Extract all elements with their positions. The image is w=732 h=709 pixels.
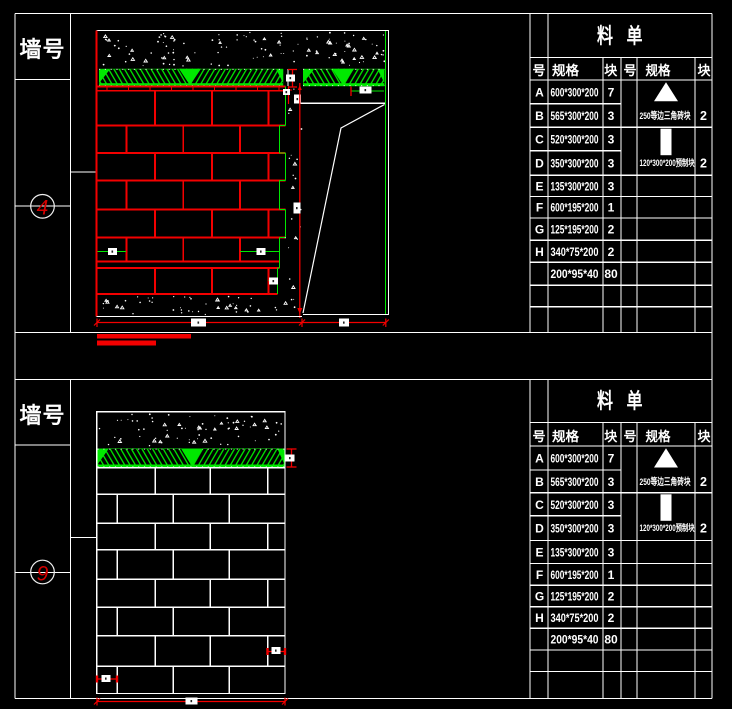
svg-text:2: 2 (608, 245, 615, 259)
svg-text:D: D (535, 157, 544, 171)
svg-text:340*75*200: 340*75*200 (551, 245, 599, 259)
svg-text:块: 块 (697, 63, 711, 78)
svg-text:3: 3 (608, 132, 615, 146)
svg-text:600*195*200: 600*195*200 (551, 201, 599, 215)
svg-text:E: E (535, 546, 543, 560)
svg-text:350*300*200: 350*300*200 (551, 522, 599, 536)
svg-text:2: 2 (608, 611, 615, 625)
svg-text:4: 4 (37, 197, 49, 220)
svg-text:2: 2 (700, 157, 707, 171)
svg-text:块: 块 (697, 429, 711, 444)
svg-text:块: 块 (604, 429, 618, 444)
svg-text:125*195*200: 125*195*200 (551, 223, 599, 237)
svg-text:规格: 规格 (646, 63, 672, 78)
svg-text:7: 7 (608, 85, 615, 99)
svg-text:1: 1 (608, 568, 615, 582)
svg-text:2: 2 (700, 522, 707, 536)
svg-text:B: B (535, 475, 544, 489)
svg-text:1: 1 (608, 201, 615, 215)
svg-text:80: 80 (604, 633, 618, 647)
svg-text:3: 3 (608, 179, 615, 193)
svg-text:135*300*200: 135*300*200 (551, 546, 599, 560)
svg-text:A: A (535, 85, 544, 99)
svg-text:F: F (536, 201, 543, 215)
svg-text:2: 2 (608, 589, 615, 603)
svg-text:350*300*200: 350*300*200 (551, 157, 599, 171)
svg-text:块: 块 (604, 63, 618, 78)
svg-text:200*95*40: 200*95*40 (551, 267, 599, 281)
svg-text:9: 9 (37, 563, 49, 586)
svg-text:340*75*200: 340*75*200 (551, 611, 599, 625)
svg-text:规格: 规格 (646, 429, 672, 444)
svg-text:单: 单 (627, 389, 643, 413)
svg-text:565*300*200: 565*300*200 (551, 475, 599, 489)
svg-text:125*195*200: 125*195*200 (551, 589, 599, 603)
svg-text:规格: 规格 (552, 429, 580, 444)
svg-text:250等边三角砖块: 250等边三角砖块 (640, 476, 691, 488)
svg-text:料: 料 (597, 390, 613, 413)
svg-text:料: 料 (597, 25, 613, 48)
svg-text:3: 3 (608, 475, 615, 489)
svg-text:520*300*200: 520*300*200 (551, 132, 599, 146)
svg-text:3: 3 (608, 498, 615, 512)
svg-text:600*195*200: 600*195*200 (551, 568, 599, 582)
svg-text:F: F (536, 568, 543, 582)
svg-text:单: 单 (627, 24, 643, 48)
svg-text:520*300*200: 520*300*200 (551, 498, 599, 512)
svg-text:G: G (535, 589, 544, 603)
svg-text:3: 3 (608, 546, 615, 560)
svg-text:B: B (535, 109, 544, 123)
svg-text:3: 3 (608, 522, 615, 536)
svg-text:3: 3 (608, 157, 615, 171)
svg-text:2: 2 (700, 475, 707, 489)
svg-text:565*300*200: 565*300*200 (551, 109, 599, 123)
svg-text:号: 号 (532, 429, 545, 444)
svg-text:E: E (535, 179, 543, 193)
svg-text:7: 7 (608, 452, 615, 466)
svg-text:规格: 规格 (552, 63, 580, 78)
svg-text:号: 号 (623, 63, 636, 78)
svg-text:600*300*200: 600*300*200 (551, 85, 599, 99)
svg-text:A: A (535, 452, 544, 466)
svg-text:墙号: 墙号 (19, 37, 65, 62)
svg-text:G: G (535, 223, 544, 237)
svg-text:250等边三角砖块: 250等边三角砖块 (640, 110, 691, 122)
svg-text:C: C (535, 132, 544, 146)
svg-text:120*300*200预制块: 120*300*200预制块 (640, 157, 696, 168)
svg-text:H: H (535, 611, 544, 625)
svg-text:600*300*200: 600*300*200 (551, 452, 599, 466)
svg-text:200*95*40: 200*95*40 (551, 633, 599, 647)
svg-text:墙号: 墙号 (19, 403, 65, 428)
svg-text:3: 3 (608, 109, 615, 123)
svg-text:号: 号 (623, 429, 636, 444)
svg-text:2: 2 (608, 223, 615, 237)
svg-text:D: D (535, 522, 544, 536)
svg-text:80: 80 (604, 267, 618, 281)
svg-text:号: 号 (532, 63, 545, 78)
svg-text:H: H (535, 245, 544, 259)
svg-text:2: 2 (700, 109, 707, 123)
svg-text:135*300*200: 135*300*200 (551, 179, 599, 193)
svg-text:C: C (535, 498, 544, 512)
svg-text:120*300*200预制块: 120*300*200预制块 (640, 522, 696, 533)
